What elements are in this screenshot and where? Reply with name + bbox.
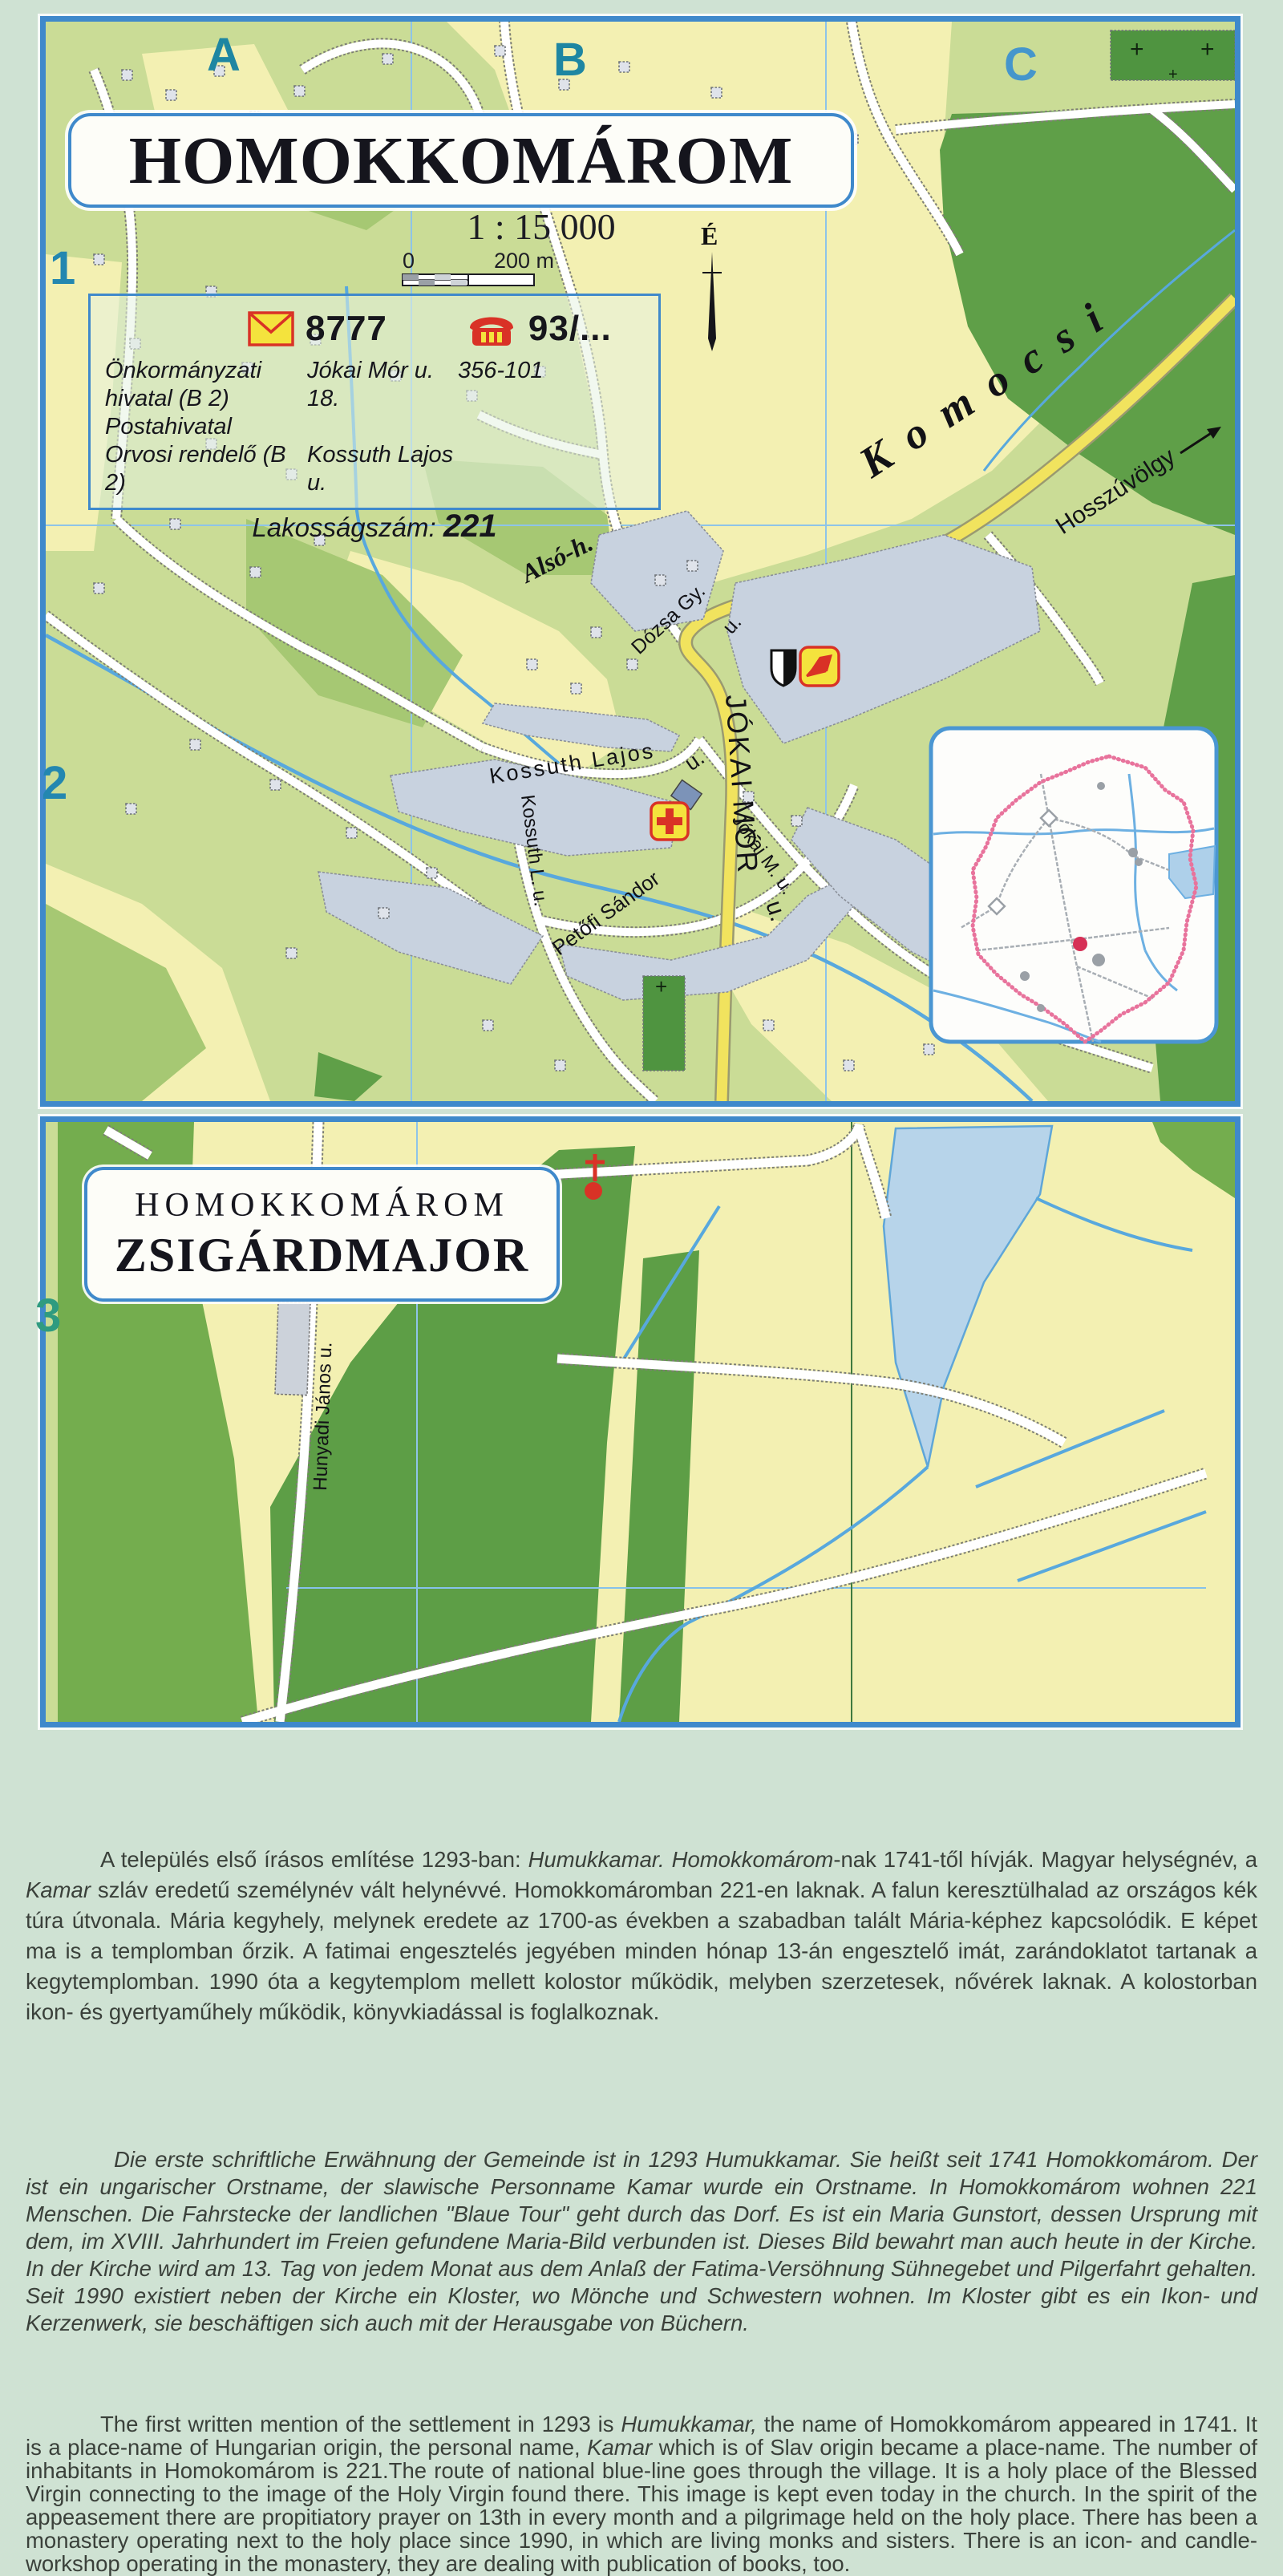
scale-bar: 0 200 m	[399, 250, 560, 292]
info-phone	[458, 441, 658, 497]
info-address	[307, 413, 458, 441]
paragraph-english: The first written mention of the settlem…	[26, 2412, 1257, 2575]
mail-icon	[248, 310, 294, 347]
cemetery-area: + + +	[1111, 30, 1235, 83]
info-table: Önkormányzati hivatal (B 2) Jókai Mór u.…	[105, 357, 658, 497]
cemetery-cross-icon: +	[1168, 66, 1178, 83]
postal-code: 8777	[306, 309, 387, 349]
info-address: Kossuth Lajos u.	[307, 441, 458, 497]
info-phone	[458, 413, 658, 441]
cemetery-cross-icon: +	[1130, 36, 1144, 63]
church-grounds: +	[643, 974, 685, 1071]
scanned-map-page: { "map1": { "title": "HOMOKKOMÁROM", "gr…	[0, 0, 1283, 2573]
scale-zero: 0	[403, 250, 415, 273]
zsigardmajor-title-box: HOMOKKOMÁROM ZSIGÁRDMAJOR	[84, 1167, 560, 1302]
townhall-shield-icon	[771, 650, 795, 686]
north-label: É	[701, 221, 718, 251]
info-name: Önkormányzati hivatal (B 2)	[105, 357, 307, 413]
info-icons-row: 8777 93/...	[248, 309, 658, 349]
shrine-icon	[800, 647, 839, 686]
paragraph-german: Die erste schriftliche Erwähnung der Gem…	[26, 2146, 1257, 2337]
church-cross-icon: +	[655, 974, 667, 998]
north-arrow-icon	[696, 249, 728, 361]
phone-icon	[466, 310, 517, 347]
grid-col-b: B	[553, 37, 587, 83]
cemetery-cross-icon: +	[1200, 36, 1215, 63]
grid-row-2: 2	[42, 760, 67, 807]
map-title: HOMOKKOMÁROM	[129, 122, 794, 200]
farm-building	[275, 1302, 310, 1395]
village-info-box: 8777 93/... Önkormányzati hivatal (B 2) …	[88, 294, 661, 510]
scale-end: 200 m	[494, 250, 554, 273]
population-value: 221	[443, 508, 497, 544]
phone-code: 93/...	[528, 309, 612, 349]
locator-inset-map	[929, 726, 1219, 1044]
info-name: Postahivatal	[105, 413, 307, 441]
zsigardmajor-title-village: HOMOKKOMÁROM	[135, 1186, 509, 1225]
grid-col-c: C	[1004, 42, 1038, 88]
zsigardmajor-title: ZSIGÁRDMAJOR	[115, 1228, 529, 1283]
inset-village-marker	[1073, 937, 1087, 951]
map-title-box: HOMOKKOMÁROM	[68, 113, 854, 208]
info-name: Orvosi rendelő (B 2)	[105, 441, 307, 497]
population-row: Lakosságszám: 221	[91, 508, 658, 545]
grid-row-1: 1	[50, 245, 75, 292]
scale-ratio: 1 : 15 000	[405, 205, 678, 248]
info-phone: 356-101	[458, 357, 658, 413]
grid-col-a: A	[207, 32, 241, 79]
population-label: Lakosságszám:	[252, 512, 435, 542]
medical-icon	[651, 803, 688, 840]
info-address: Jókai Mór u. 18.	[307, 357, 458, 413]
grid-row-3: 3	[35, 1293, 61, 1339]
paragraph-hungarian: A település első írásos említése 1293-ba…	[26, 1845, 1257, 2027]
